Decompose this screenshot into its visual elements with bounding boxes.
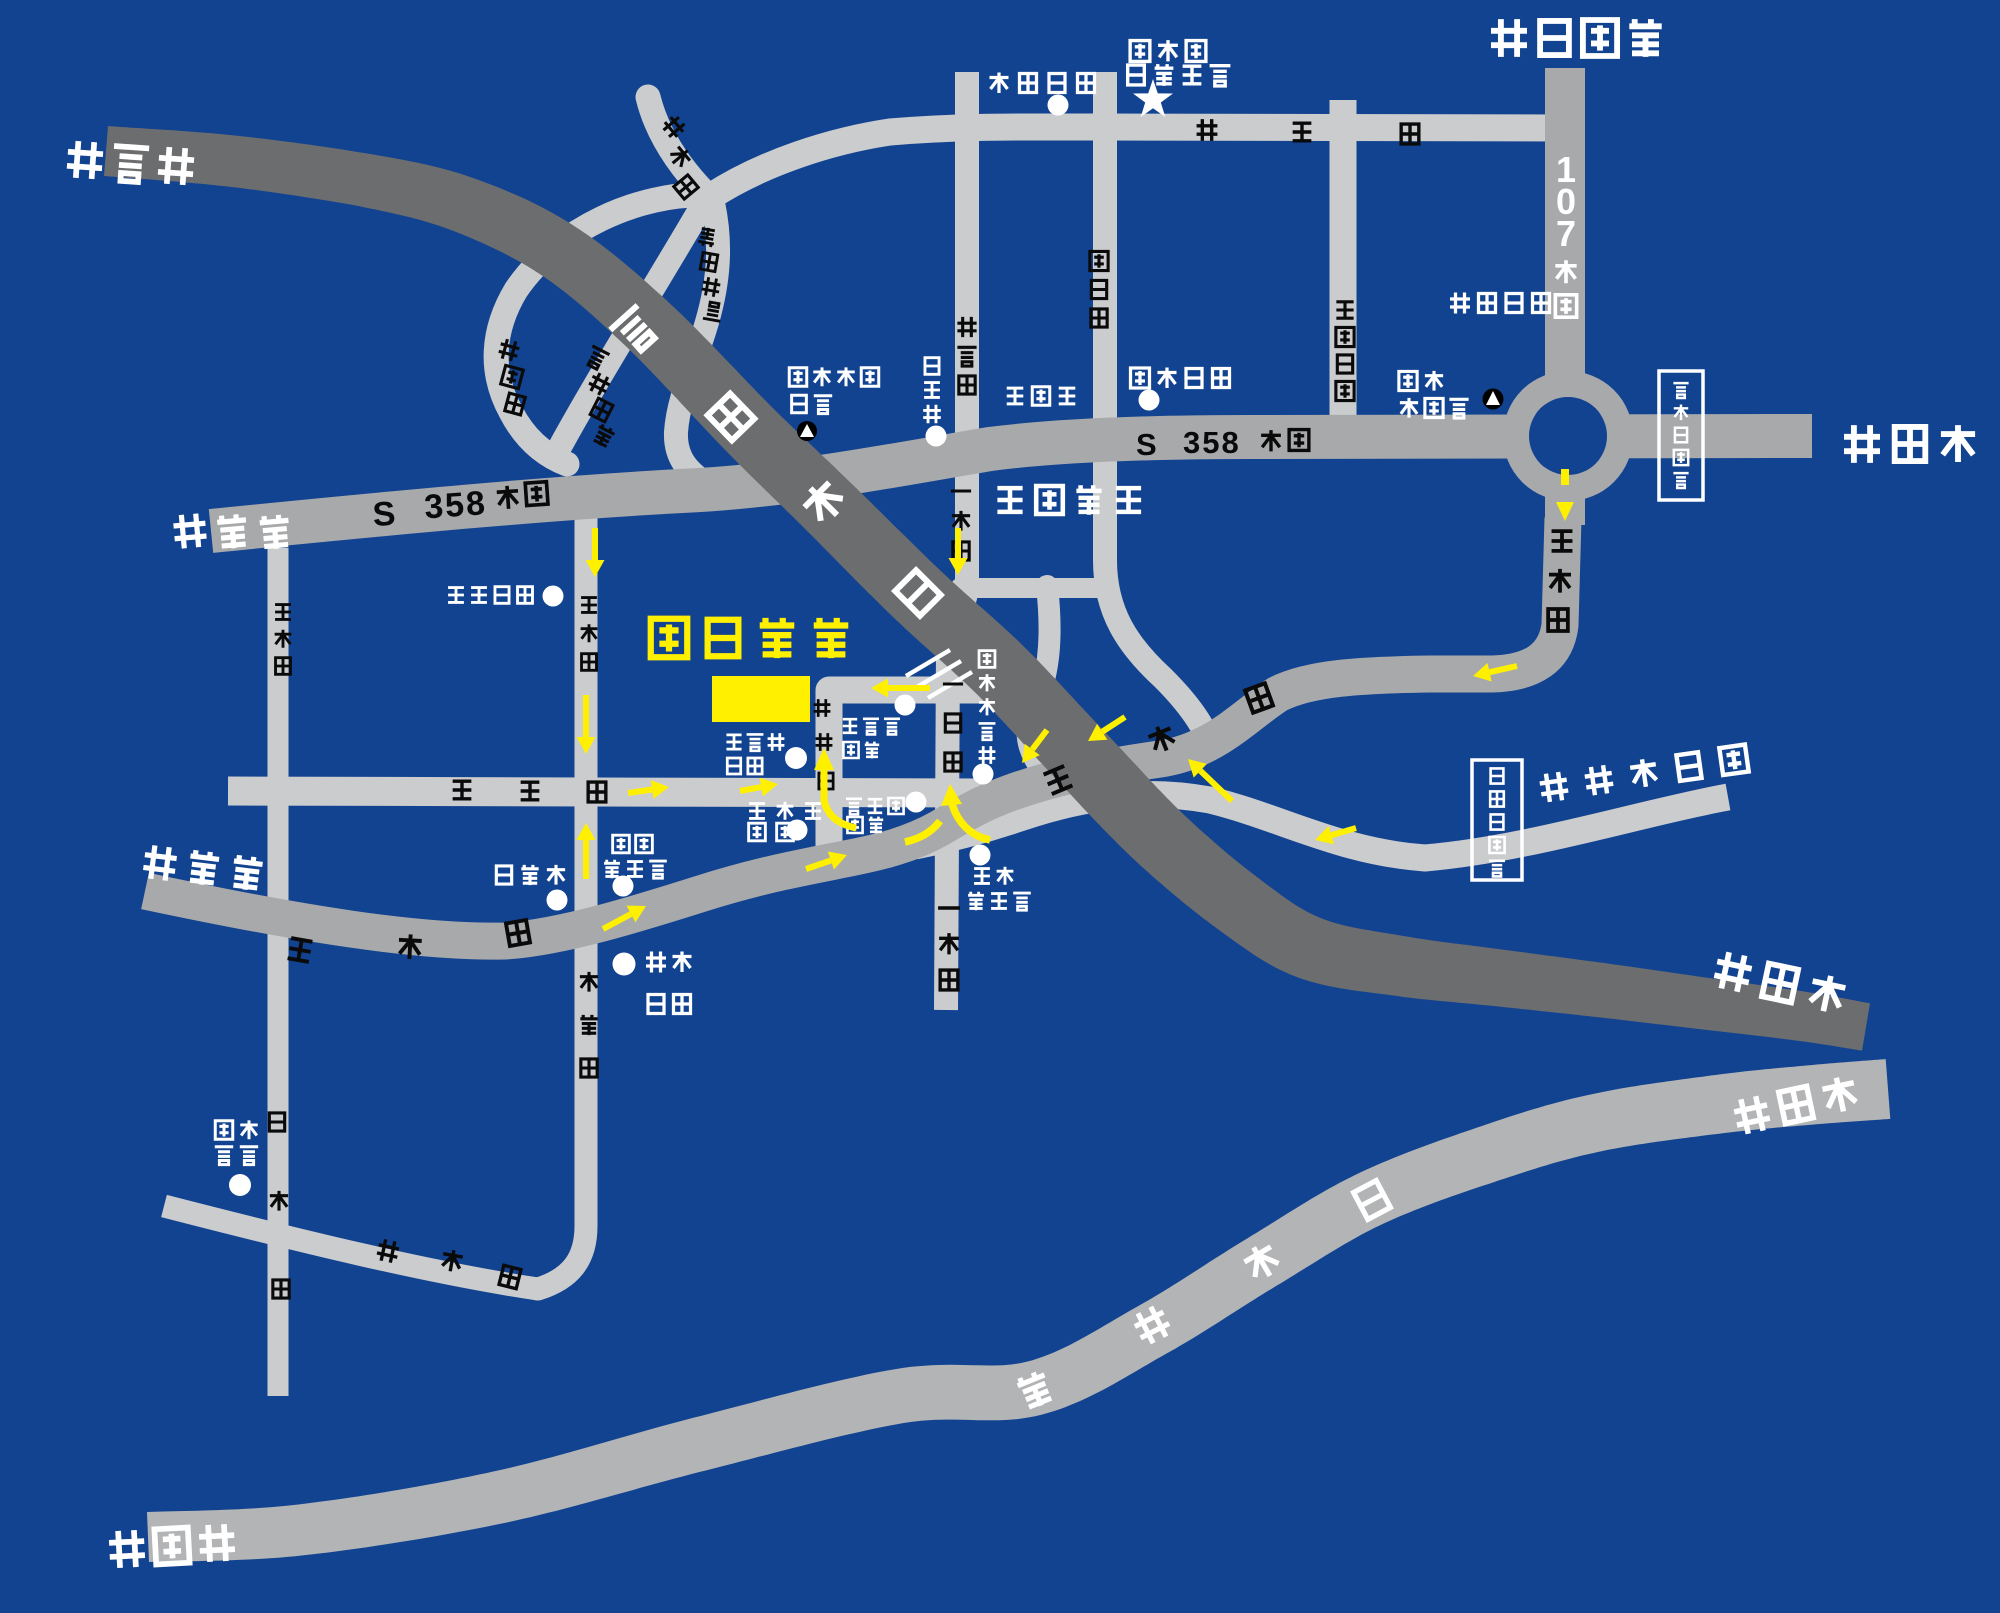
svg-text:7: 7: [1556, 213, 1576, 254]
svg-text:S: S: [1136, 427, 1157, 462]
svg-text:358: 358: [423, 484, 488, 526]
svg-text:358: 358: [1183, 425, 1241, 460]
svg-text:S: S: [371, 495, 396, 534]
